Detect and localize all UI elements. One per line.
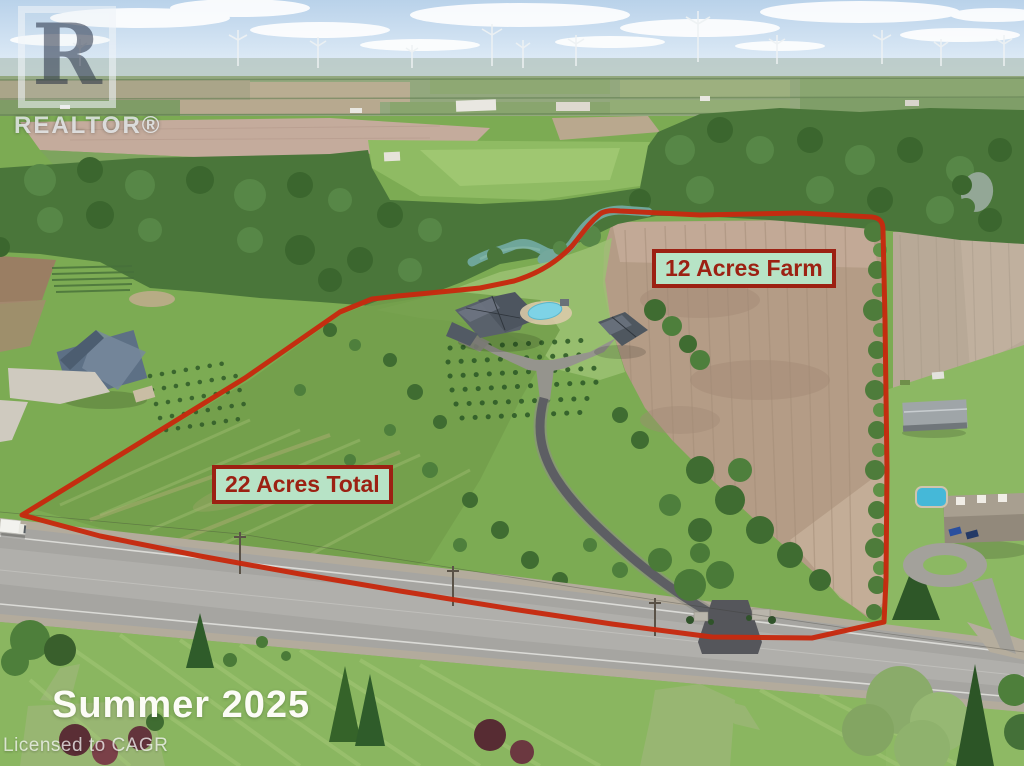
season-label: Summer 2025 — [52, 684, 310, 727]
east-pool — [916, 487, 947, 507]
total-acreage-text: 22 Acres Total — [225, 471, 380, 498]
gate-pillar-left — [694, 612, 708, 621]
realtor-watermark: R REALTOR® — [14, 6, 134, 140]
total-acreage-label: 22 Acres Total — [212, 465, 393, 504]
realtor-logo-letter: R — [32, 13, 102, 97]
east-shed — [902, 399, 968, 438]
pool-shed — [560, 299, 569, 306]
aerial-photo: R REALTOR® 12 Acres Farm 22 Acres Total … — [0, 0, 1024, 766]
distant-farm-building — [384, 152, 400, 162]
license-watermark: Licensed to CAGR — [3, 735, 168, 757]
farm-acreage-text: 12 Acres Farm — [665, 255, 823, 282]
realtor-logo: R — [18, 6, 116, 108]
realtor-brand-text: REALTOR® — [14, 112, 134, 140]
sky — [0, 0, 1024, 84]
farm-acreage-label: 12 Acres Farm — [652, 249, 836, 288]
